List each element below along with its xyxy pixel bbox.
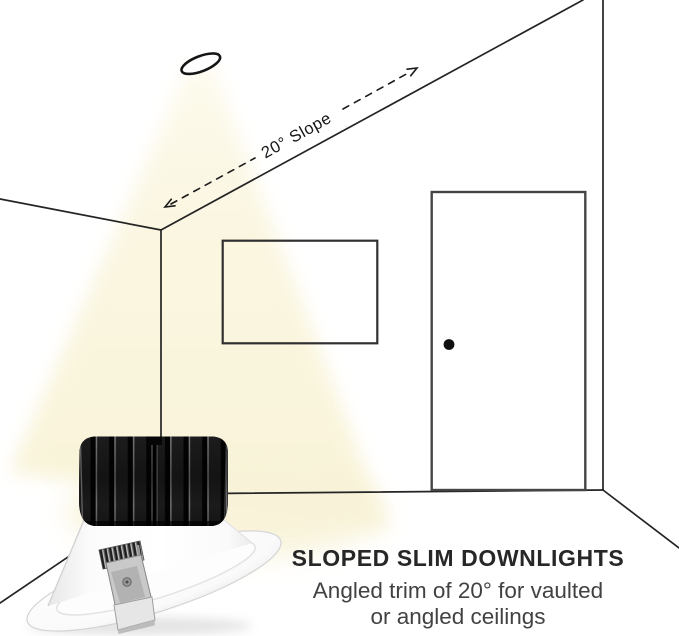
door [432,192,586,490]
slope-dash-right [343,72,411,110]
door-knob [444,339,455,350]
heat-sink-top-notch [148,436,162,445]
heat-sink-center-seam [153,436,157,528]
slope-arrowhead-right [407,68,417,76]
product-infographic: 20° Slope [0,0,679,636]
heat-sink [79,436,229,528]
slope-label: 20° Slope [258,109,334,162]
right-floor-line [603,490,679,548]
room-diagram: 20° Slope [0,0,679,636]
